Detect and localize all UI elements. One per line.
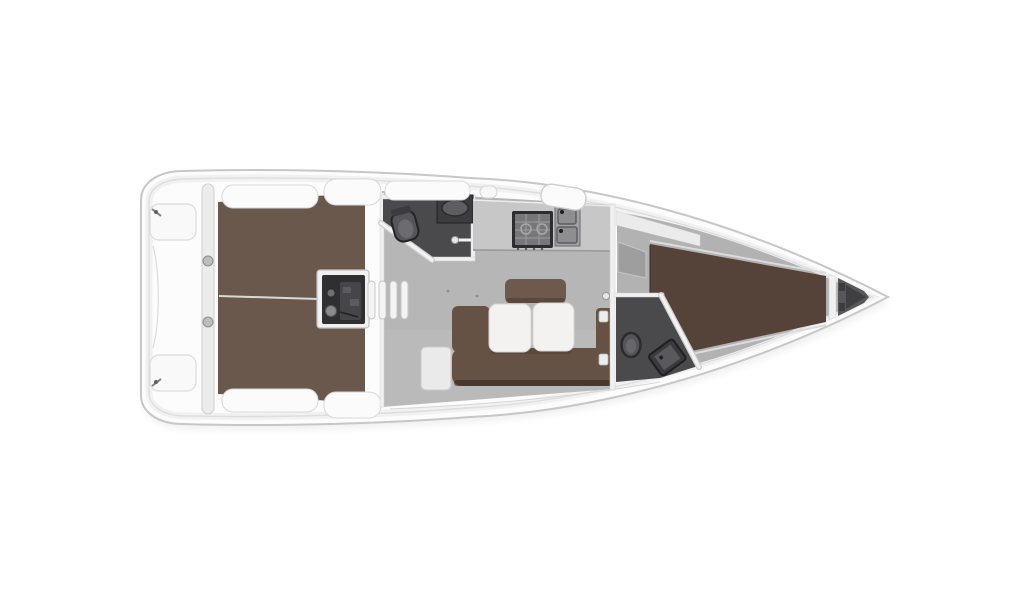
steering-console [317,270,369,328]
step-2 [379,281,386,319]
cockpit-bench-starboard-aft [222,389,318,412]
cockpit-bench-starboard-fwd [324,392,381,418]
step-4 [401,281,408,319]
galley-counter-front-edge [473,250,613,251]
settee-bottom-shadow [454,380,611,386]
settee-hinge-upper [599,311,608,322]
stove-knob-2 [525,248,527,250]
bow-bulkhead [829,274,836,320]
forward-head-top-wall [614,293,664,297]
stove-knob-3 [533,248,535,250]
stove-knob-4 [541,248,543,250]
sink-faucet-upper [560,210,564,214]
cockpit-bench-port-fwd [324,179,381,205]
yacht-floor-plan-canvas [0,0,1024,600]
forward-head-toilet-seat [626,339,636,353]
aft-head-door-handle [452,237,459,244]
aft-head-sink-basin [442,200,468,216]
galley-double-sink [555,206,580,246]
settee-hinge-lower [599,354,608,365]
step-3 [390,281,397,319]
floor-fitting-dot-2 [476,295,479,298]
settee-left-arm [452,306,490,352]
console-machinery-detail-1 [343,287,351,293]
deck-box-above-head [385,181,470,200]
mast-deck-fitting [480,186,497,198]
table-leaf-right [533,303,574,351]
cabin-door-handle [603,293,610,300]
stern-cleat-starboard-dot [154,380,158,384]
cockpit-bench-port-aft [222,185,318,208]
winch-knob-lower [203,317,213,327]
console-gauge-small [328,290,335,297]
step-1 [368,281,375,319]
table-leaf-left [489,304,531,352]
floor-fitting-dot-1 [447,290,450,293]
stern-seat-port [150,204,196,240]
console-gauge-large [326,306,337,317]
transom-pillar [202,184,214,414]
winch-knob-upper [203,256,213,266]
locker-hinge-lower [839,303,845,311]
galley [473,200,613,251]
console-machinery-detail-2 [350,299,359,306]
galley-stove [512,211,553,250]
cockpit [218,179,381,418]
sink-faucet-lower [559,229,563,233]
locker-hinge-upper [839,283,845,291]
yacht-floor-plan [0,0,1024,600]
stern-seat-starboard [150,355,196,391]
stern-cleat-port-dot [154,210,158,214]
stove-knob-1 [517,248,519,250]
settee-backrest-shadow [506,298,565,303]
aft-head-bottom-wall [429,257,475,261]
salon-stool-seat [421,347,451,390]
